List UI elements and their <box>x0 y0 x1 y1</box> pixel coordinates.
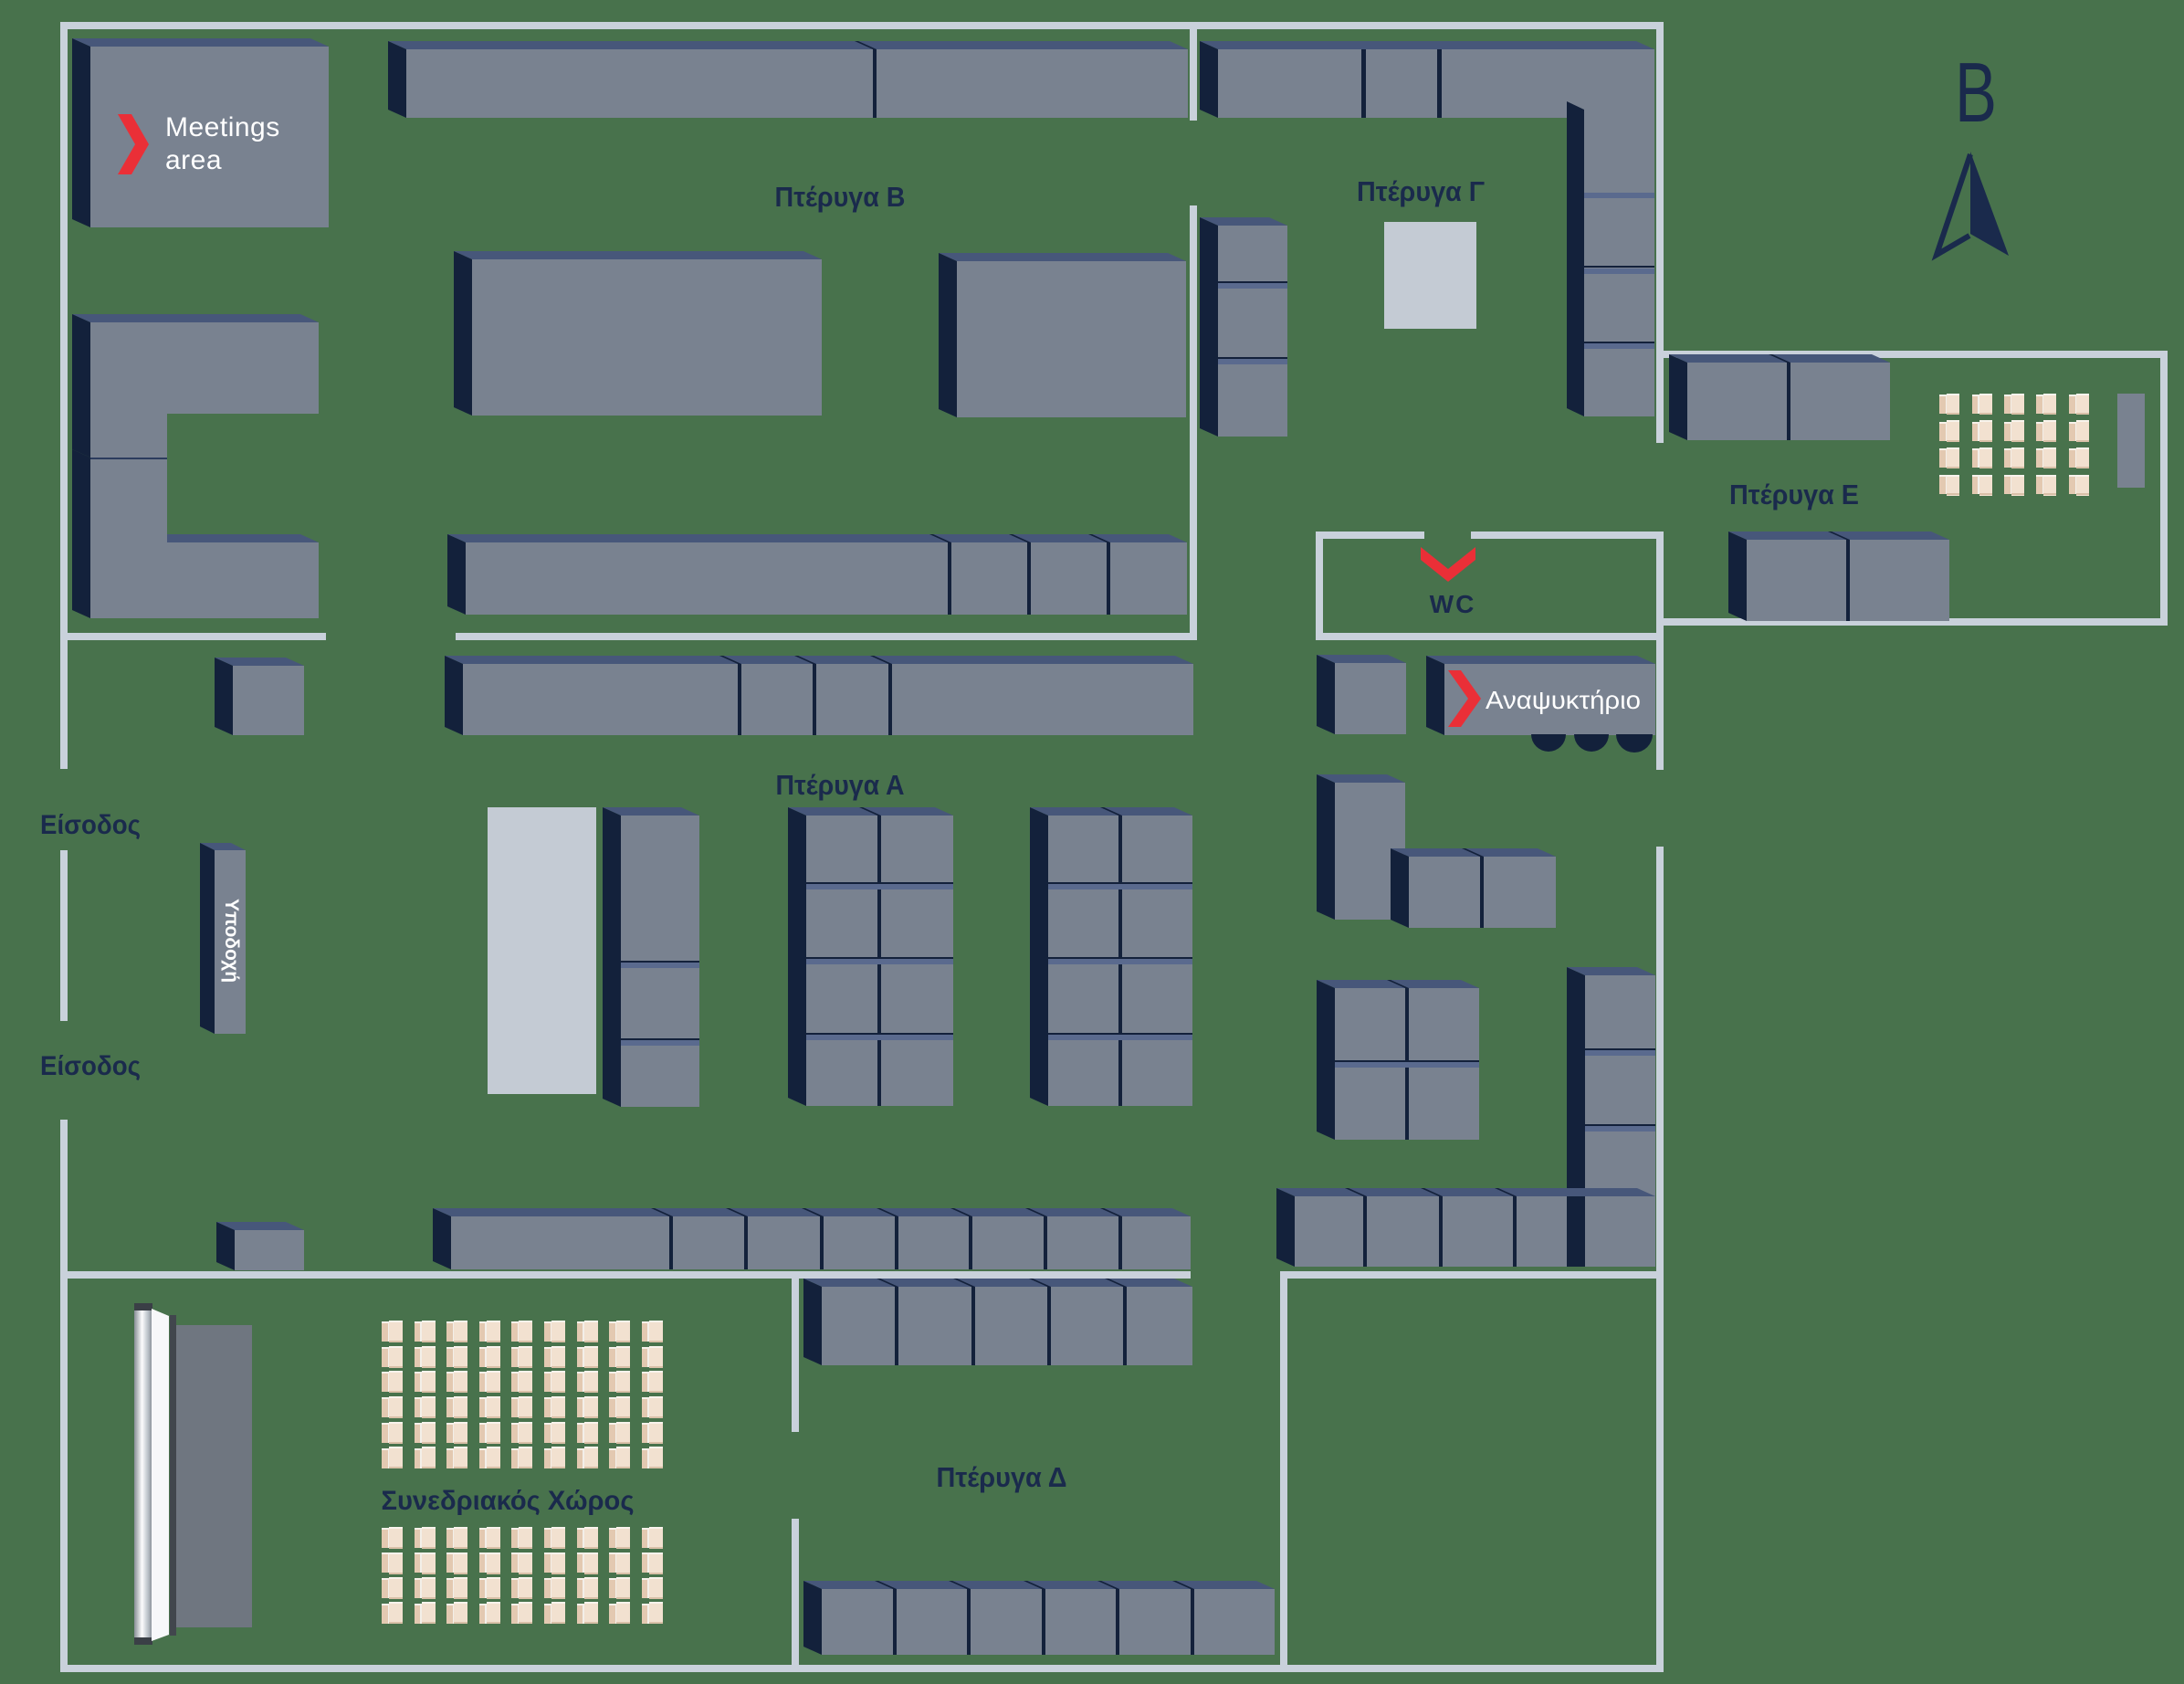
svg-text:Πτέρυγα Δ: Πτέρυγα Δ <box>937 1461 1067 1493</box>
svg-text:Είσοδος: Είσοδος <box>40 810 141 840</box>
svg-text:Πτέρυγα Β: Πτέρυγα Β <box>775 181 906 213</box>
svg-text:Αναψυκτήριο: Αναψυκτήριο <box>1486 686 1641 714</box>
svg-text:Πτέρυγα Ε: Πτέρυγα Ε <box>1729 479 1859 510</box>
svg-text:B: B <box>1955 45 1997 140</box>
svg-text:Πτέρυγα Α: Πτέρυγα Α <box>776 769 905 801</box>
svg-text:WC: WC <box>1430 590 1476 618</box>
svg-text:Υποδοχή: Υποδοχή <box>221 899 242 983</box>
svg-text:Συνεδριακός Χώρος: Συνεδριακός Χώρος <box>382 1486 635 1516</box>
svg-text:Είσοδος: Είσοδος <box>40 1051 141 1081</box>
svg-text:Πτέρυγα Γ: Πτέρυγα Γ <box>1357 175 1485 207</box>
